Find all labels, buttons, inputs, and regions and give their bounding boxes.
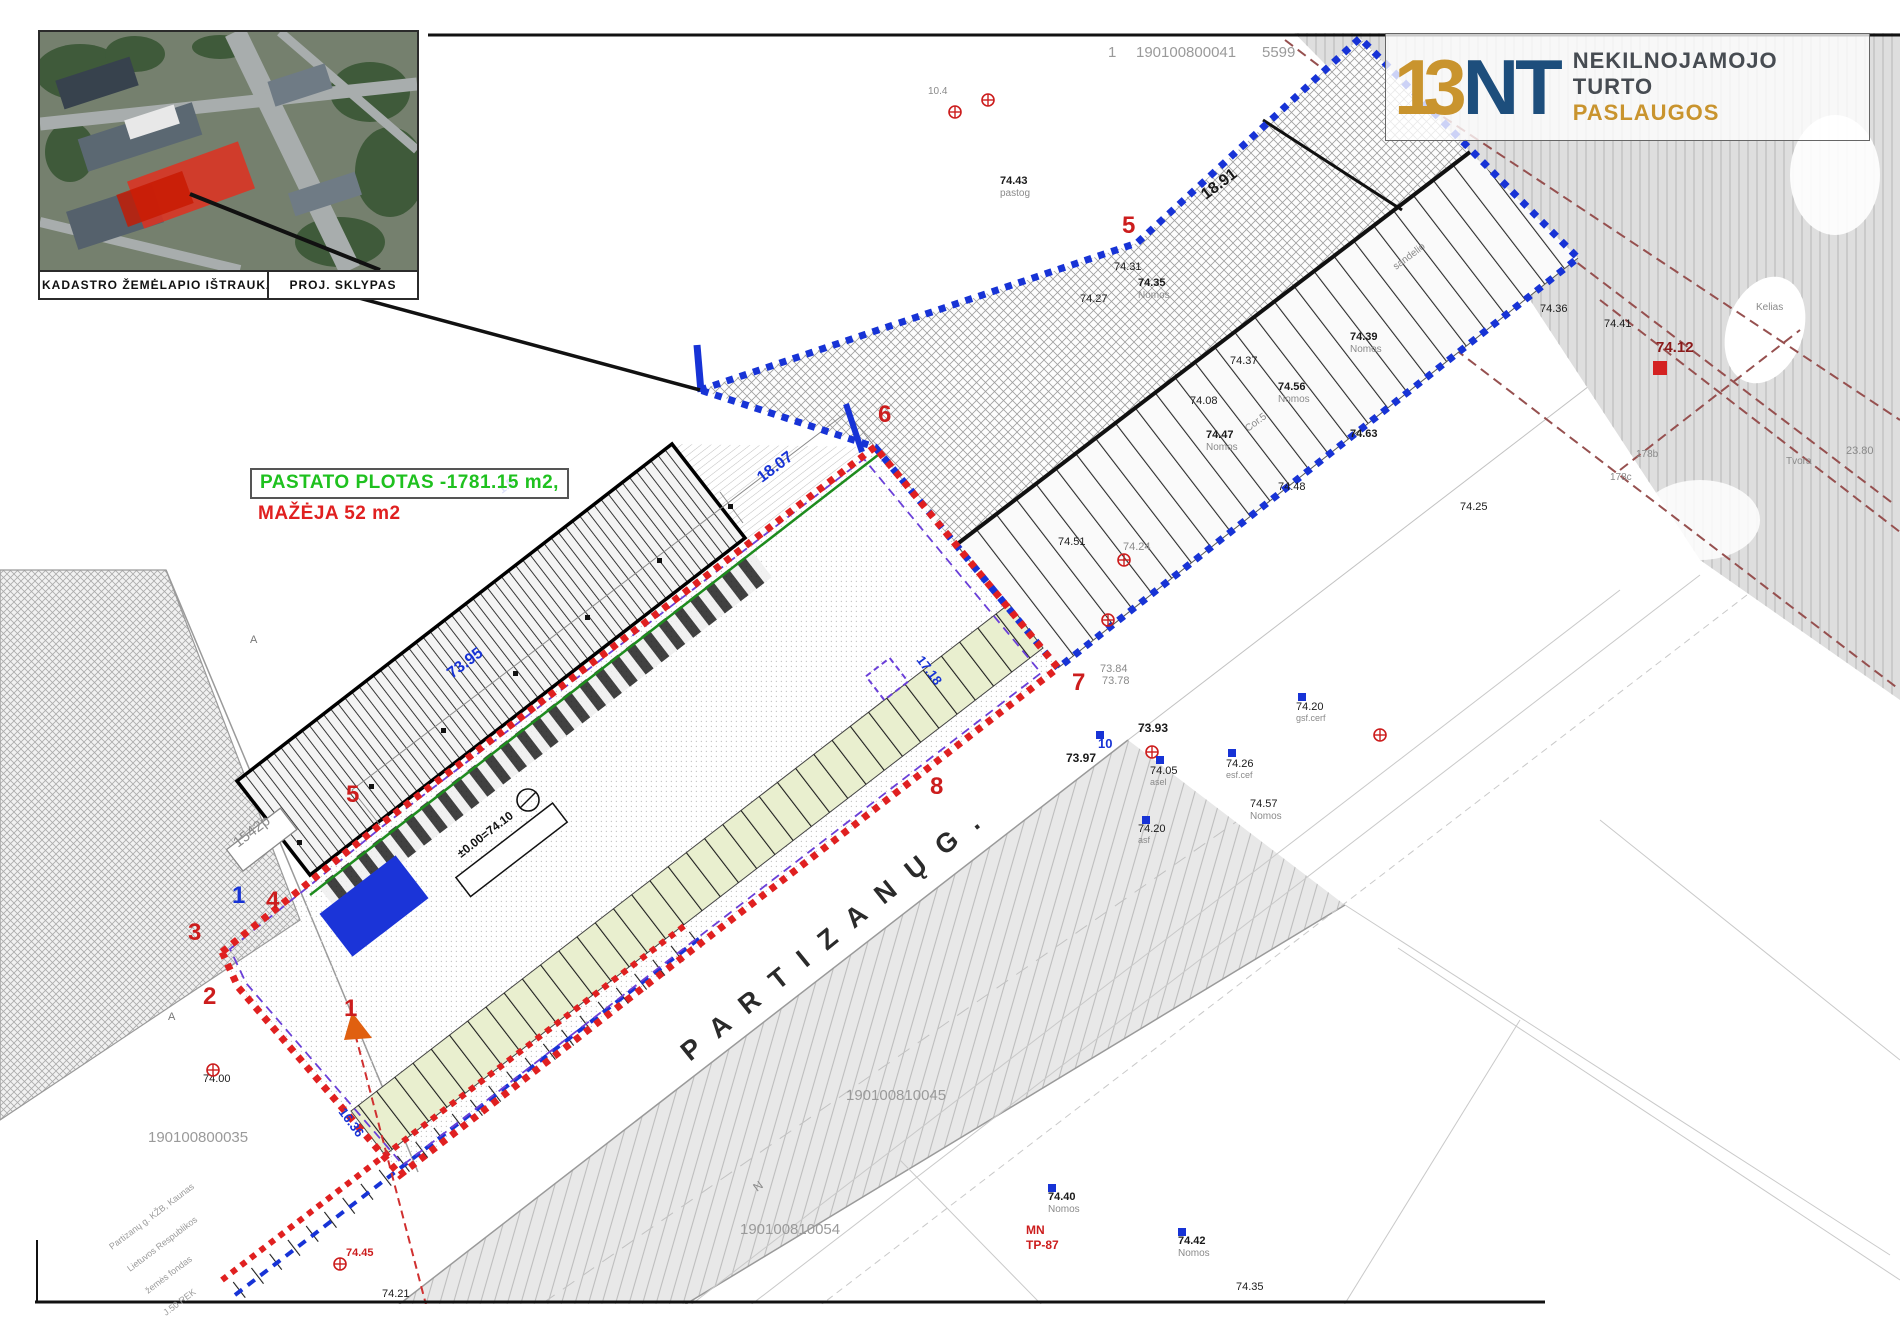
red-plus-marker [334,1258,346,1270]
map-label: 74.47 [1206,429,1234,441]
map-label: 74.35 [1236,1281,1264,1293]
satellite-image [40,32,417,270]
vertex-label: 1 [232,882,245,909]
map-label: 74.20 [1296,701,1324,713]
blue-square-marker [1298,693,1306,701]
vertex-label: 5 [346,781,359,808]
map-label: 74.25 [1460,501,1488,513]
map-label: pastog [1000,188,1030,199]
map-label: Nomos [1138,290,1170,301]
map-label: 178c [1610,472,1632,483]
map-label: TP-87 [1026,1238,1059,1252]
vertex-label: 4 [266,887,280,914]
logo-wordmark: NEKILNOJAMOJO TURTO PASLAUGOS [1573,48,1778,126]
logo-13-glyph: 13 [1394,42,1453,132]
building-area-label: PASTATO PLOTAS -1781.15 m2, [250,468,569,499]
company-logo: 13 NT NEKILNOJAMOJO TURTO PASLAUGOS [1385,33,1870,141]
map-label: 178b [1636,449,1659,460]
map-label: asf [1138,835,1151,845]
area-decrease-label: MAŽĖJA 52 m2 [250,503,569,525]
map-label: 74.45 [346,1247,374,1259]
red-plus-marker [1102,614,1114,626]
vertex-label: 2 [203,983,216,1010]
vertex-label: 5 [1122,212,1135,239]
vertex-label: 1 [344,995,357,1022]
map-label: 73.78 [1102,675,1130,687]
map-label: 74.21 [382,1288,410,1300]
map-label: 74.05 [1150,765,1178,777]
map-label: 74.56 [1278,381,1306,393]
map-label: 190100800035 [148,1129,248,1146]
satellite-inset: KADASTRO ŽEMĖLAPIO IŠTRAUKA PROJ. SKLYPA… [38,30,419,300]
map-label: 190100810045 [846,1087,946,1104]
map-label: 190100810054 [740,1221,840,1238]
map-label: 74.41 [1604,318,1632,330]
cadastral-plan-page: { "colors":{ "red_boundary":"#e02020","b… [0,0,1900,1344]
vertex-label: 6 [878,401,891,428]
red-plus-marker [1118,554,1130,566]
blue-square-marker [1156,756,1164,764]
blue-corner-tick [697,345,701,392]
map-label: 10.4 [928,86,948,97]
blue-square-marker [1228,749,1236,757]
map-label: 74.39 [1350,331,1378,343]
red-plus-marker [1374,729,1386,741]
red-plus-marker [982,94,994,106]
map-label: 23.80 [1846,445,1874,457]
map-label: 74.48 [1278,481,1306,493]
map-label: Nomos [1278,394,1310,405]
map-label: asel [1150,777,1167,787]
map-label: 74.24 [1123,541,1151,553]
map-label: 73.93 [1138,721,1168,735]
map-label: 74.43 [1000,175,1028,187]
map-label: Nomos [1048,1204,1080,1215]
vertex-label: 8 [930,773,943,800]
map-label: 73.84 [1100,663,1128,675]
vertex-label: 3 [188,919,201,946]
map-label: 74.20 [1138,823,1166,835]
map-label: 74.31 [1114,261,1142,273]
red-plus-marker [207,1064,219,1076]
logo-word-2: TURTO [1573,74,1778,100]
map-label: A [168,1011,176,1023]
map-label: 74.27 [1080,293,1108,305]
map-label: Nomos [1350,344,1382,355]
red-plus-marker [949,106,961,118]
map-label: 74.57 [1250,798,1278,810]
blue-square-marker [1096,731,1104,739]
map-label: 74.42 [1178,1235,1206,1247]
map-label: 74.08 [1190,395,1218,407]
map-label: 74.40 [1048,1191,1076,1203]
map-label: 1 [1108,44,1116,61]
map-label: 190100800041 [1136,44,1236,61]
area-note: PASTATO PLOTAS -1781.15 m2, MAŽĖJA 52 m2 [250,468,569,525]
map-label: 74.36 [1540,303,1568,315]
vertex-label: 7 [1072,669,1085,696]
map-label: 74.26 [1226,758,1254,770]
map-label: 74.12 [1656,339,1694,356]
map-label: gsf.cerf [1296,713,1326,723]
map-label: 74.63 [1350,428,1378,440]
map-label: Kelias [1756,302,1783,313]
map-label: Nomos [1206,442,1238,453]
blue-square-marker [1048,1184,1056,1192]
logo-word-1: NEKILNOJAMOJO [1573,48,1778,74]
inset-caption-right: PROJ. SKLYPAS [269,272,417,298]
map-label: Nomos [1250,811,1282,822]
map-label: esf.cef [1226,770,1253,780]
map-label: 74.37 [1230,355,1258,367]
blue-square-marker [1178,1228,1186,1236]
blue-square-marker [1142,816,1150,824]
inset-caption-left: KADASTRO ŽEMĖLAPIO IŠTRAUKA [40,272,269,298]
red-square-marker [1653,361,1667,375]
map-label: 74.35 [1138,277,1166,289]
logo-word-3: PASLAUGOS [1573,100,1778,126]
map-label: A [250,634,258,646]
map-label: MN [1026,1223,1045,1237]
logo-nt-glyph: NT [1463,42,1559,132]
map-label: 74.51 [1058,536,1086,548]
map-label: 5599 [1262,44,1295,61]
map-label: Tvora [1786,456,1812,467]
map-label: Nomos [1178,1248,1210,1259]
inset-caption-row: KADASTRO ŽEMĖLAPIO IŠTRAUKA PROJ. SKLYPA… [40,270,417,298]
logo-mark: 13 NT [1394,42,1559,132]
map-label: 73.97 [1066,751,1096,765]
